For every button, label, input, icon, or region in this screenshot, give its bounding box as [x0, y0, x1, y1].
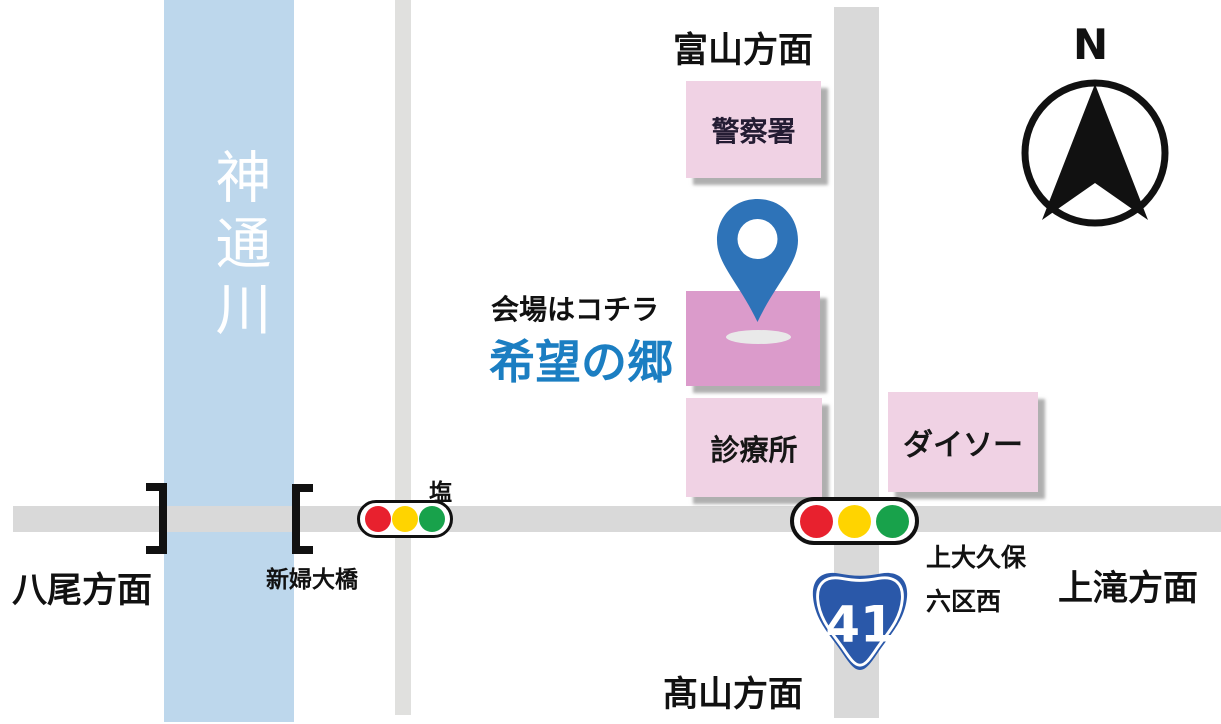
compass-icon [1018, 76, 1172, 230]
bridge-name-label: 新婦大橋 [266, 560, 358, 594]
direction-label-toyama: 富山方面 [673, 22, 813, 73]
building-police-station: 警察署 [686, 81, 821, 178]
road-vertical-minor [395, 0, 411, 715]
direction-label-kamidaki: 上滝方面 [1058, 560, 1198, 611]
signal-name-label-shio: 塩 [429, 473, 452, 507]
signal-red-lamp-icon [365, 506, 391, 532]
traffic-signal-kamiokubo-icon [790, 497, 919, 545]
intersection-label-line1: 上大久保 [926, 538, 1026, 574]
route-41-badge-icon: 41 [805, 565, 915, 675]
river-jinzu [164, 0, 294, 722]
river-name-label: 神通川 [198, 148, 279, 346]
route-41-number: 41 [825, 596, 895, 654]
road-horizontal [13, 506, 1221, 532]
venue-name-label: 希望の郷 [489, 326, 673, 392]
map-canvas: 神通川 新婦大橋 富山方面 八尾方面 上滝方面 髙山方面 警察署 診療所 ダイソ… [0, 0, 1221, 724]
building-daiso: ダイソー [888, 392, 1038, 492]
compass-north-label: N [1073, 20, 1108, 69]
signal-red-lamp-icon [800, 505, 833, 538]
daiso-label: ダイソー [903, 420, 1023, 464]
signal-green-lamp-icon [419, 506, 445, 532]
signal-yellow-lamp-icon [392, 506, 418, 532]
bridge-bracket-east-icon [292, 484, 313, 554]
venue-pin-icon [714, 197, 801, 324]
clinic-label: 診療所 [710, 427, 797, 469]
intersection-label-line2: 六区西 [926, 582, 1001, 618]
signal-yellow-lamp-icon [838, 505, 871, 538]
direction-label-yatsuo: 八尾方面 [12, 562, 152, 613]
signal-green-lamp-icon [876, 505, 909, 538]
police-station-label: 警察署 [711, 110, 795, 150]
venue-caption-label: 会場はコチラ [491, 288, 659, 328]
building-clinic: 診療所 [686, 398, 822, 497]
bridge-bracket-west-icon [146, 483, 167, 554]
direction-label-takayama: 髙山方面 [663, 666, 803, 717]
pin-ground-shadow [726, 330, 791, 344]
